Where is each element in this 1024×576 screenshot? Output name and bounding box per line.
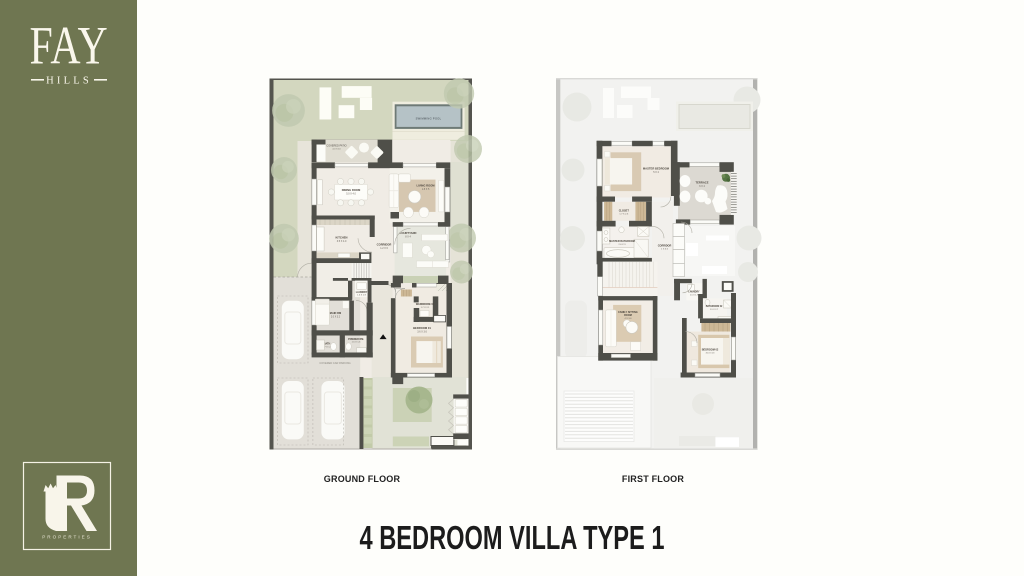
svg-text:4 BEDROOM VILLA TYPE 1: 4 BEDROOM VILLA TYPE 1 [360, 520, 665, 557]
svg-text:FIRST FLOOR: FIRST FLOOR [622, 474, 684, 484]
svg-text:1 X 5.5: 1 X 5.5 [661, 249, 669, 251]
svg-text:1.7 X 2.1: 1.7 X 2.1 [421, 307, 431, 309]
svg-text:SWIMMING POOL: SWIMMING POOL [416, 117, 442, 121]
svg-text:1.8 X 5: 1.8 X 5 [422, 188, 430, 191]
svg-text:KITCHEN: KITCHEN [336, 235, 348, 239]
svg-text:BATHROOM 02: BATHROOM 02 [706, 305, 723, 308]
svg-text:LAUNDRY: LAUNDRY [356, 291, 368, 294]
svg-text:4.0 X 10: 4.0 X 10 [332, 148, 341, 150]
svg-text:1.5 X 1.6: 1.5 X 1.6 [352, 342, 362, 344]
svg-text:4 X 3.6: 4 X 3.6 [625, 318, 633, 320]
svg-text:MASTER BEDROOM: MASTER BEDROOM [643, 167, 670, 171]
svg-text:BATH: BATH [324, 343, 331, 346]
svg-text:LIVING ROOM: LIVING ROOM [416, 184, 435, 188]
svg-text:8 X 4: 8 X 4 [405, 235, 411, 238]
svg-text:GROUND FLOOR: GROUND FLOOR [324, 474, 401, 484]
svg-text:MASTER BATHROOM: MASTER BATHROOM [609, 240, 635, 243]
svg-text:1.2 X 6: 1.2 X 6 [380, 247, 388, 250]
svg-text:BEDROOM 02: BEDROOM 02 [702, 348, 719, 351]
svg-text:DINING ROOM: DINING ROOM [342, 188, 361, 192]
svg-text:2.0 X 3.2: 2.0 X 3.2 [331, 316, 341, 318]
svg-text:COVERED PATIO: COVERED PATIO [326, 145, 346, 148]
svg-text:HILLS: HILLS [46, 76, 92, 87]
svg-text:COURTYARD: COURTYARD [400, 231, 417, 235]
svg-text:1.9 X 2.7: 1.9 X 2.7 [710, 309, 719, 311]
svg-text:POWDER RM.: POWDER RM. [348, 338, 364, 341]
svg-text:CORRIDOR: CORRIDOR [658, 245, 672, 248]
svg-text:WARDROBE 01: WARDROBE 01 [416, 303, 435, 306]
svg-text:6 X 4: 6 X 4 [699, 185, 705, 188]
svg-text:COVERED CAR PARKING: COVERED CAR PARKING [319, 361, 350, 365]
svg-text:2.6 X 3: 2.6 X 3 [619, 244, 627, 246]
svg-text:BEDROOM 01: BEDROOM 01 [413, 326, 431, 330]
svg-text:FAY: FAY [30, 16, 109, 76]
svg-text:1.6 X 1.9: 1.6 X 1.9 [357, 295, 367, 297]
svg-text:ROOM: ROOM [624, 314, 632, 317]
svg-text:1.5 X 1.9: 1.5 X 1.9 [690, 294, 699, 296]
svg-text:3.5 X 4.0: 3.5 X 4.0 [337, 240, 347, 243]
svg-text:MAID RM: MAID RM [330, 311, 341, 315]
svg-text:CLOSET: CLOSET [619, 210, 630, 213]
svg-text:3.6 X 3.6: 3.6 X 3.6 [417, 330, 427, 333]
svg-text:5 X 4: 5 X 4 [653, 171, 659, 174]
svg-text:TERRACE: TERRACE [696, 181, 709, 185]
svg-text:5.0 X 4.0: 5.0 X 4.0 [346, 192, 356, 195]
svg-text:CORRIDOR: CORRIDOR [377, 243, 392, 247]
svg-text:LAUNDRY: LAUNDRY [688, 291, 700, 294]
svg-text:PROPERTIES: PROPERTIES [42, 535, 92, 540]
svg-text:1.7 X 2.6: 1.7 X 2.6 [619, 214, 629, 216]
svg-text:3.6 X 3.3: 3.6 X 3.3 [706, 352, 716, 354]
